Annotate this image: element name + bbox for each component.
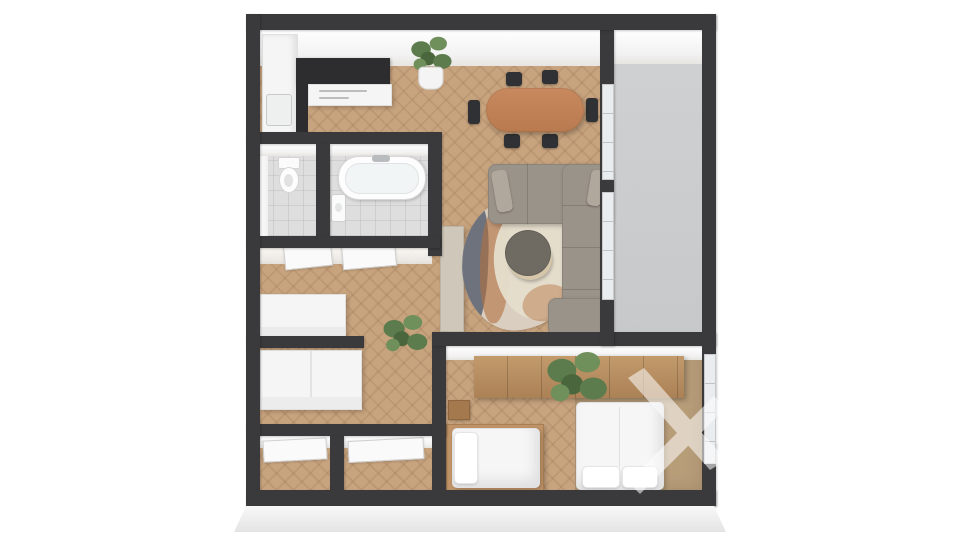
nightstand: [448, 400, 470, 420]
sofa-chaise: [548, 298, 608, 336]
balcony-floor: [614, 30, 702, 346]
watermark-logo: [628, 356, 768, 506]
closet2-door: [347, 437, 424, 463]
kitchen-cabinet-front: [308, 84, 392, 106]
dining-chair: [542, 70, 558, 84]
dining-chair: [468, 100, 480, 124]
floor-plan-render: [0, 0, 960, 540]
bedroom-plant: [544, 352, 612, 420]
wall-bedroom-top: [432, 332, 716, 346]
wall-bathroom-bottom: [246, 236, 440, 248]
dining-table: [486, 88, 584, 132]
wash-basin: [331, 194, 346, 222]
kitchen-plant: [409, 37, 455, 88]
exterior-wall-band: [234, 506, 726, 532]
balcony-window: [602, 84, 614, 180]
closet1-door: [262, 437, 327, 462]
double-bed-pillow: [582, 466, 620, 488]
bathtub-faucet: [372, 155, 390, 162]
cabinet-handle: [319, 97, 349, 99]
wall-hallway-bottom: [246, 336, 364, 348]
cabinet-handle: [319, 90, 367, 92]
coffee-table: [505, 230, 551, 276]
dining-chair: [542, 134, 558, 148]
wall-closets-top: [246, 424, 446, 436]
dining-chair: [504, 134, 520, 148]
balcony-wall-face: [614, 30, 702, 64]
bathtub: [338, 156, 426, 200]
balcony-door-glass: [602, 192, 614, 300]
toilet-bowl: [279, 167, 299, 193]
kitchen-counter-top: [296, 58, 390, 84]
wc-north-wall-face: [258, 144, 318, 156]
dressing-wardrobe: [260, 350, 362, 410]
single-bed-pillow: [454, 432, 478, 484]
wall-closet-divider: [330, 436, 344, 490]
kitchen-sink: [266, 94, 292, 126]
wall-outer-top: [246, 14, 716, 30]
hallway-wardrobe: [260, 294, 346, 338]
wall-wc-bath-divider: [316, 144, 330, 236]
wall-bedroom-left: [432, 332, 446, 490]
plant-pot: [418, 67, 443, 90]
sideboard: [440, 226, 464, 332]
wall-bathroom-top: [246, 132, 440, 144]
dining-chair: [506, 72, 522, 86]
kitchen-counter-left: [296, 58, 308, 136]
dining-chair: [586, 98, 598, 122]
wall-outer-left: [246, 14, 260, 506]
bathtub-basin: [345, 163, 419, 194]
hallway-plant: [381, 315, 431, 365]
